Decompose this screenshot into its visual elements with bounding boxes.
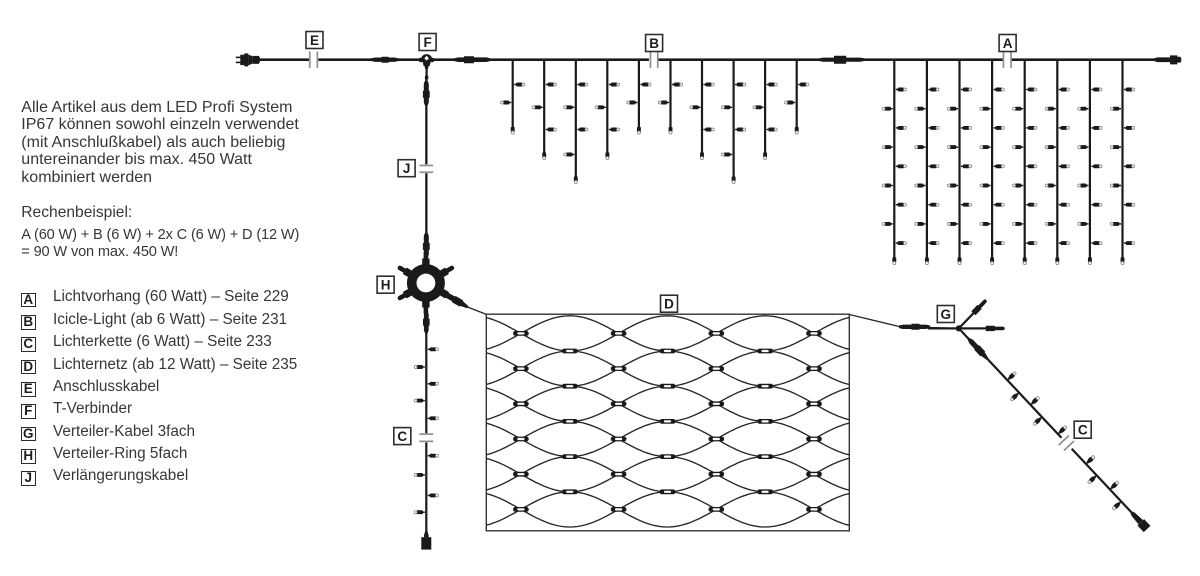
svg-text:C: C [1078,423,1088,438]
svg-text:A: A [1003,36,1013,51]
svg-text:F: F [423,35,431,50]
svg-text:E: E [310,33,319,48]
svg-text:D: D [664,297,674,312]
svg-text:C: C [397,429,407,444]
svg-text:G: G [941,307,952,322]
svg-text:J: J [403,161,411,176]
svg-text:H: H [381,278,391,293]
svg-text:B: B [649,36,659,51]
